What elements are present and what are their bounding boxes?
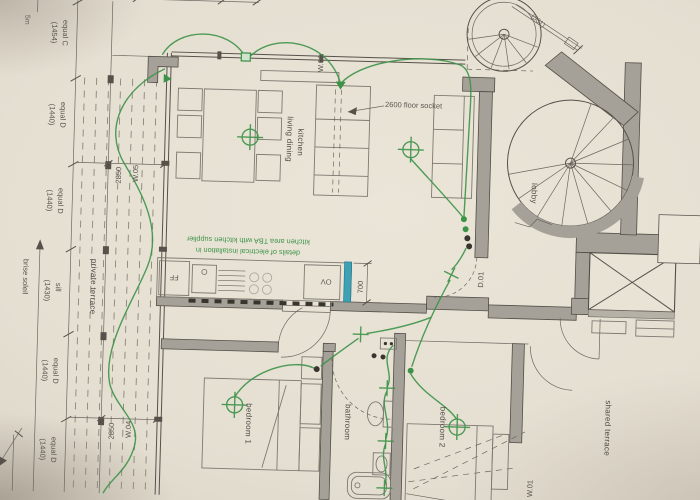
counter-end-panel [344, 262, 352, 302]
switch-bed1 [314, 366, 320, 372]
dim-equal-d1-name: equal D [58, 102, 68, 129]
floor-socket-callout [348, 105, 384, 116]
plan-sheet: 5m equal C (1454) equal D (1440) equal D… [0, 0, 700, 500]
wall-bed1-top [161, 339, 278, 352]
stair-reference-line [511, 4, 584, 54]
tall-unit [314, 85, 371, 196]
scale-5m-label: 5m [23, 15, 30, 25]
window-w05-label: W.05 [131, 165, 140, 182]
dim-equal-d2-value: (1440) [45, 189, 55, 211]
junction-box [241, 53, 250, 61]
wire-to-bed2-switch [412, 279, 450, 368]
shaft-void [588, 253, 676, 335]
dim-equal-d3-name: equal D [51, 358, 61, 385]
wall-bed2-right [510, 344, 525, 443]
hob [249, 273, 272, 295]
wall-terrace-jamb [571, 298, 589, 314]
socket-2 [463, 226, 469, 232]
ceiling-light-living-1 [237, 124, 264, 151]
window-w01-label: W.01 [525, 480, 534, 497]
dim-equal-d3-value: (1440) [40, 359, 50, 381]
wire-bed2-light [409, 374, 457, 419]
sink [192, 265, 246, 294]
bath-socket-1 [371, 353, 376, 358]
socket-1 [461, 216, 467, 222]
window-w06-label: W.06 [316, 55, 325, 72]
oven-dim-label: 700 [356, 281, 365, 294]
wire-arc-3 [337, 57, 472, 217]
window-w04-label: W.04 [124, 421, 133, 438]
wc [367, 401, 393, 428]
dim-equal-c-value: (1454) [50, 22, 60, 44]
wire-to-switch [451, 248, 466, 270]
wall-bath-stub [323, 343, 335, 351]
terrace-edge-lines [406, 465, 517, 500]
bedroom2-label: bedroom 2 [438, 407, 448, 448]
external-unit [636, 320, 674, 337]
dim-sill-name: sill [54, 283, 63, 292]
socket-3 [464, 235, 470, 241]
wire-arc-2 [249, 42, 342, 84]
living-label-line1: living dining [284, 116, 294, 162]
switch-hall [441, 264, 462, 285]
dim-equal-d1-value: (1440) [47, 104, 57, 126]
kitchen-note-line2: kitchen area TBA with kitchen supplier [186, 234, 310, 246]
kitchen-counter [157, 255, 372, 306]
dim-equal-d4-value: (1440) [38, 438, 48, 460]
dim-equal-c-name: equal C [61, 20, 71, 47]
oven-label: OV [321, 277, 332, 286]
bathroom-fixtures [347, 337, 396, 499]
column-markers [98, 75, 114, 425]
bedroom1-label: bedroom 1 [244, 403, 254, 444]
spiral-stair-small [466, 0, 542, 72]
wall-corridor-south [488, 305, 576, 320]
wall-lobby-left [475, 92, 493, 258]
bed-1 [202, 354, 322, 471]
wall-lobby-top [462, 77, 494, 92]
fridge-label: FF [169, 273, 179, 282]
basin [373, 453, 391, 475]
glazed-walls [152, 50, 465, 500]
lobby-label: lobby [529, 183, 539, 204]
kitchen-note-line1: details of electrical installation in [196, 246, 300, 258]
floor-plan-drawing: 5m equal C (1454) equal D (1440) equal D… [0, 0, 700, 500]
wire-to-hall-light [367, 316, 431, 336]
w05-dim-label: 2850 [114, 167, 123, 184]
ceiling-light-bed1 [221, 391, 248, 418]
door-bed1-swing [278, 307, 302, 348]
stair-ref-label: (501) [529, 13, 546, 29]
living-label-line2: kitchen [296, 128, 306, 156]
w04-dim-label: 2850 [107, 423, 116, 440]
door-shared-terrace [559, 318, 600, 359]
brise-soleil-label: brise soleil [21, 259, 31, 295]
wall-kitchen-south-b [330, 301, 426, 313]
socket-4 [466, 243, 472, 249]
floor-socket-label: 2600 floor socket [385, 100, 443, 111]
door-d01-label: D.01 [476, 272, 485, 288]
bath-socket-2 [380, 354, 385, 359]
tv-bench [261, 70, 339, 82]
shared-terrace-label: shared terrace [602, 400, 613, 456]
bathroom-label: bathroom [343, 404, 353, 440]
bed-2 [405, 424, 525, 500]
dim-equal-d2-name: equal D [56, 188, 66, 215]
external-recess [658, 215, 700, 264]
wire-light-to-sockets [409, 159, 465, 217]
floor-plan-photo: 5m equal C (1454) equal D (1440) equal D… [0, 0, 700, 500]
private-terrace-label: private terrace [88, 259, 99, 315]
dim-equal-d4-name: equal D [49, 437, 59, 464]
dining-set [176, 88, 283, 183]
dim-sill-value: (1430) [42, 279, 52, 301]
switch-bed2 [408, 368, 414, 374]
door-bed2-swing [529, 346, 573, 390]
ceiling-light-living-2 [397, 136, 424, 163]
